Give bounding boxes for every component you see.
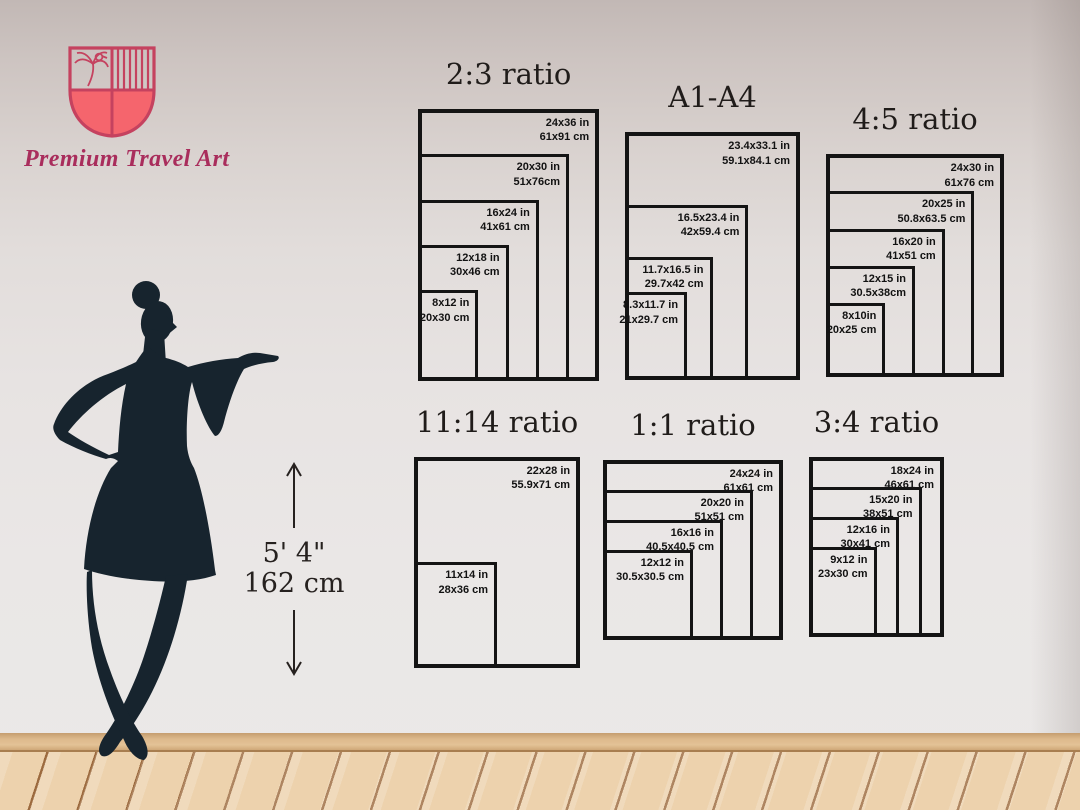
size-label-inches: 11x14 in xyxy=(439,568,489,582)
size-label-inches: 11.7x16.5 in xyxy=(642,263,703,277)
size-rect: 12x12 in30.5x30.5 cm xyxy=(603,550,693,640)
size-label-inches: 20x20 in xyxy=(694,496,744,510)
size-label-cm: 20x25 cm xyxy=(827,323,877,337)
room-scene: Premium Travel Art 5' 4" 162 cm 2:3 rati… xyxy=(0,0,1080,810)
size-label-inches: 23.4x33.1 in xyxy=(722,139,790,153)
size-label-cm: 55.9x71 cm xyxy=(511,478,570,492)
size-label-cm: 41x51 cm xyxy=(886,249,936,263)
size-label-inches: 18x24 in xyxy=(884,464,934,478)
size-group-title: 11:14 ratio xyxy=(416,408,578,437)
woman-silhouette xyxy=(40,278,290,778)
size-group-title: 3:4 ratio xyxy=(814,408,939,437)
size-label-inches: 16x16 in xyxy=(646,526,714,540)
size-label: 8x12 in20x30 cm xyxy=(420,296,470,325)
size-group: 3:4 ratio18x24 in46x61 cm15x20 in38x51 c… xyxy=(809,457,944,637)
size-label-cm: 59.1x84.1 cm xyxy=(722,154,790,168)
size-group: 4:5 ratio24x30 in61x76 cm20x25 in50.8x63… xyxy=(826,154,1004,377)
brand-name: Premium Travel Art xyxy=(24,146,214,173)
size-label-inches: 8.3x11.7 in xyxy=(619,298,678,312)
size-label-inches: 8x12 in xyxy=(420,296,470,310)
size-label: 24x30 in61x76 cm xyxy=(945,161,995,190)
size-label-cm: 30.5x38cm xyxy=(850,286,906,300)
size-label-inches: 20x30 in xyxy=(514,160,561,174)
size-label: 12x18 in30x46 cm xyxy=(450,251,500,280)
size-group: A1-A423.4x33.1 in59.1x84.1 cm16.5x23.4 i… xyxy=(625,132,800,380)
size-label: 11x14 in28x36 cm xyxy=(439,568,489,597)
size-label-cm: 30.5x30.5 cm xyxy=(616,570,684,584)
size-label: 9x12 in23x30 cm xyxy=(818,553,868,582)
size-label-cm: 61x91 cm xyxy=(540,130,590,144)
size-rect: 8.3x11.7 in21x29.7 cm xyxy=(625,292,687,380)
size-label-inches: 16x20 in xyxy=(886,235,936,249)
size-label: 8x10in20x25 cm xyxy=(827,309,877,338)
size-group-title: A1-A4 xyxy=(668,83,757,112)
size-label: 20x25 in50.8x63.5 cm xyxy=(898,197,966,226)
size-rect: 8x12 in20x30 cm xyxy=(418,290,478,381)
size-label: 16x24 in41x61 cm xyxy=(480,206,530,235)
size-rect: 9x12 in23x30 cm xyxy=(809,547,877,637)
size-label-inches: 22x28 in xyxy=(511,464,570,478)
size-label-inches: 9x12 in xyxy=(818,553,868,567)
size-label-inches: 12x16 in xyxy=(840,523,890,537)
size-label: 22x28 in55.9x71 cm xyxy=(511,464,570,493)
size-label-cm: 42x59.4 cm xyxy=(678,225,740,239)
size-group: 2:3 ratio24x36 in61x91 cm20x30 in51x76cm… xyxy=(418,109,599,381)
silhouette-body xyxy=(53,346,279,582)
size-group: 11:14 ratio22x28 in55.9x71 cm11x14 in28x… xyxy=(414,457,580,668)
shield-stripes xyxy=(118,49,148,89)
size-label-cm: 21x29.7 cm xyxy=(619,313,678,327)
size-label-cm: 29.7x42 cm xyxy=(642,277,703,291)
size-label: 11.7x16.5 in29.7x42 cm xyxy=(642,263,703,292)
size-label-inches: 12x18 in xyxy=(450,251,500,265)
size-label-cm: 41x61 cm xyxy=(480,220,530,234)
size-label: 12x12 in30.5x30.5 cm xyxy=(616,556,684,585)
size-label-inches: 16x24 in xyxy=(480,206,530,220)
size-label-cm: 23x30 cm xyxy=(818,567,868,581)
size-label-inches: 15x20 in xyxy=(863,493,913,507)
size-label-inches: 24x36 in xyxy=(540,116,590,130)
size-group-title: 4:5 ratio xyxy=(852,105,977,134)
size-label-cm: 51x76cm xyxy=(514,175,561,189)
size-label-cm: 61x76 cm xyxy=(945,176,995,190)
size-label: 20x30 in51x76cm xyxy=(514,160,561,189)
size-label: 8.3x11.7 in21x29.7 cm xyxy=(619,298,678,327)
size-label-inches: 12x12 in xyxy=(616,556,684,570)
size-group: 1:1 ratio24x24 in61x61 cm20x20 in51x51 c… xyxy=(603,460,783,640)
size-label-cm: 20x30 cm xyxy=(420,311,470,325)
size-label-inches: 24x30 in xyxy=(945,161,995,175)
size-label: 16x20 in41x51 cm xyxy=(886,235,936,264)
size-label-inches: 12x15 in xyxy=(850,272,906,286)
size-rect: 8x10in20x25 cm xyxy=(826,303,885,377)
size-label-inches: 20x25 in xyxy=(898,197,966,211)
size-label: 12x15 in30.5x38cm xyxy=(850,272,906,301)
palm-bird-icon xyxy=(75,52,108,86)
size-label-inches: 24x24 in xyxy=(723,467,773,481)
size-label: 16.5x23.4 in42x59.4 cm xyxy=(678,211,740,240)
brand-logo-shield-icon xyxy=(66,44,158,140)
size-label-inches: 16.5x23.4 in xyxy=(678,211,740,225)
size-label: 24x36 in61x91 cm xyxy=(540,116,590,145)
silhouette-leg-crossed-front xyxy=(99,574,188,756)
size-label-cm: 28x36 cm xyxy=(439,583,489,597)
size-rect: 11x14 in28x36 cm xyxy=(414,562,497,668)
size-label-inches: 8x10in xyxy=(827,309,877,323)
size-group-title: 2:3 ratio xyxy=(446,60,571,89)
size-label-cm: 30x46 cm xyxy=(450,265,500,279)
size-group-title: 1:1 ratio xyxy=(630,411,755,440)
size-label: 23.4x33.1 in59.1x84.1 cm xyxy=(722,139,790,168)
size-label-cm: 50.8x63.5 cm xyxy=(898,212,966,226)
